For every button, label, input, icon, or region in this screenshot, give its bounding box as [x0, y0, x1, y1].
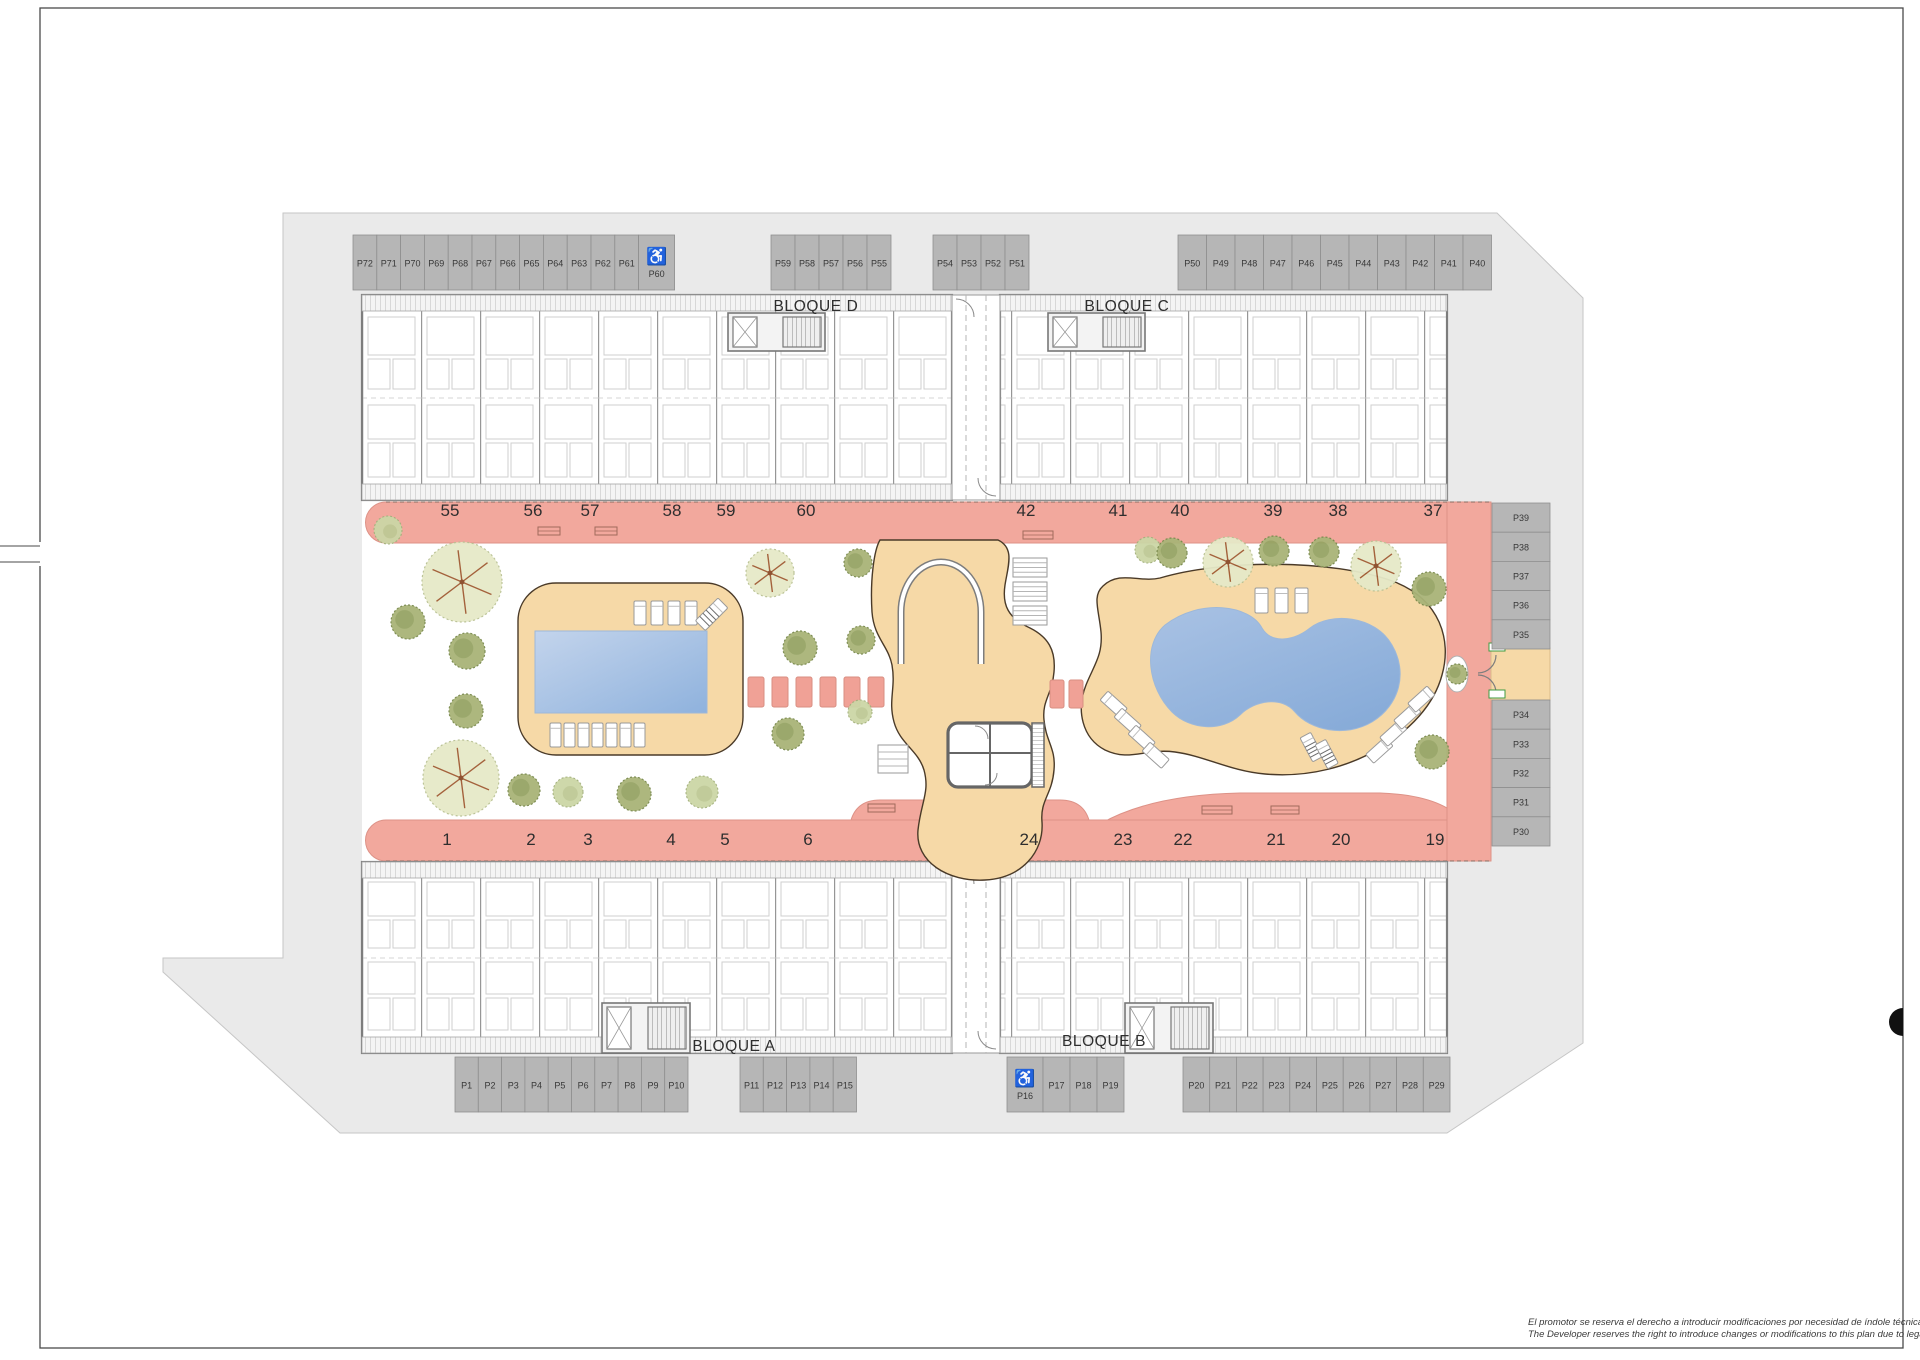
- balcony-strip: [1000, 862, 1447, 878]
- parking-stall: P21: [1210, 1057, 1237, 1112]
- sunbed: [1255, 588, 1268, 613]
- parking-stall-label: P6: [578, 1081, 589, 1091]
- parking-group-south-mid-east: ♿P16P17P18P19: [1007, 1057, 1124, 1112]
- parking-stall-label: P66: [500, 259, 516, 269]
- apartment-building: [1000, 862, 1447, 1053]
- unit-number-bottom: 19: [1426, 830, 1445, 849]
- sunbed: [606, 723, 617, 747]
- parking-group-east-upper: P39P38P37P36P35: [1492, 503, 1550, 649]
- unit-number-top: 37: [1424, 501, 1443, 520]
- parking-stall-label: P23: [1268, 1081, 1284, 1091]
- bench: [1013, 606, 1047, 625]
- stepping-stone: [1050, 680, 1064, 708]
- parking-stall: ♿P60: [639, 235, 675, 290]
- parking-group-south-west: P1P2P3P4P5P6P7P8P9P10: [455, 1057, 688, 1112]
- stepping-stone: [772, 677, 788, 707]
- parking-stall-label: P67: [476, 259, 492, 269]
- parking-stall-label: P11: [744, 1081, 759, 1091]
- sunbed: [1295, 588, 1308, 613]
- parking-stall: P43: [1378, 235, 1407, 290]
- parking-stall: P34: [1492, 700, 1550, 729]
- parking-stall-label: P8: [624, 1081, 635, 1091]
- parking-stall: P66: [496, 235, 520, 290]
- parking-stall: P71: [377, 235, 401, 290]
- block-label: BLOQUE B: [1062, 1033, 1146, 1050]
- gate-tag: [1489, 690, 1505, 698]
- parking-group-north-west: P72P71P70P69P68P67P66P65P64P63P62P61♿P60: [353, 235, 675, 290]
- parking-stall-label: P48: [1241, 259, 1257, 269]
- parking-stall-label: P44: [1355, 259, 1371, 269]
- tree: [1415, 735, 1449, 769]
- tree: [1157, 538, 1187, 568]
- unit-number-bottom: 22: [1174, 830, 1193, 849]
- bench: [1013, 558, 1047, 577]
- parking-stall: P32: [1492, 758, 1550, 787]
- parking-stall: P65: [520, 235, 544, 290]
- sunbed: [685, 601, 697, 625]
- parking-stall-label: P46: [1298, 259, 1314, 269]
- bench: [1013, 582, 1047, 601]
- unit-number-top: 39: [1264, 501, 1283, 520]
- parking-stall: P36: [1492, 591, 1550, 620]
- parking-group-north-east: P50P49P48P47P46P45P44P43P42P41P40: [1178, 235, 1492, 290]
- parking-stall-label: P62: [595, 259, 611, 269]
- unit-number-top: 57: [581, 501, 600, 520]
- parking-stall-label: P7: [601, 1081, 612, 1091]
- parking-group-east-lower: P34P33P32P31P30: [1492, 700, 1550, 846]
- tree: [686, 776, 718, 808]
- block-label: BLOQUE C: [1085, 298, 1170, 315]
- parking-stall: P28: [1397, 1057, 1424, 1112]
- parking-stall-label: P71: [381, 259, 397, 269]
- parking-stall: P70: [401, 235, 425, 290]
- parking-stall: P2: [478, 1057, 501, 1112]
- parking-stall: P52: [981, 235, 1005, 290]
- tree: [1447, 664, 1467, 684]
- disclaimer-line-en: The Developer reserves the right to intr…: [1528, 1329, 1920, 1340]
- parking-stall: P22: [1236, 1057, 1263, 1112]
- parking-stall: P72: [353, 235, 377, 290]
- parking-stall-label: P64: [547, 259, 563, 269]
- parking-stall: P8: [618, 1057, 641, 1112]
- stepping-stone: [868, 677, 884, 707]
- stair-core: [1048, 313, 1145, 351]
- tree: [1203, 537, 1253, 587]
- tree: [422, 542, 502, 622]
- balcony-strip: [362, 484, 952, 500]
- parking-stall: P23: [1263, 1057, 1290, 1112]
- parking-stall-label: P55: [871, 259, 887, 269]
- parking-stall-label: P61: [619, 259, 635, 269]
- parking-stall: P31: [1492, 788, 1550, 817]
- parking-stall-label: P43: [1384, 259, 1400, 269]
- sunbed: [651, 601, 663, 625]
- parking-stall: P41: [1435, 235, 1464, 290]
- wheelchair-icon: ♿: [1014, 1068, 1035, 1088]
- parking-group-south-mid-west: P11P12P13P14P15: [740, 1057, 857, 1112]
- parking-stall-label: P26: [1349, 1081, 1365, 1091]
- tree: [391, 605, 425, 639]
- unit-number-bottom: 2: [526, 830, 535, 849]
- parking-stall-label: P45: [1327, 259, 1343, 269]
- parking-stall: P13: [787, 1057, 810, 1112]
- parking-stall-label: P60: [649, 269, 665, 279]
- stair-core: [602, 1003, 690, 1053]
- sunbed: [1275, 588, 1288, 613]
- balcony-strip: [1000, 484, 1447, 500]
- parking-stall: P40: [1463, 235, 1492, 290]
- block-label: BLOQUE D: [774, 298, 859, 315]
- parking-stall: P19: [1097, 1057, 1124, 1112]
- tree: [1259, 536, 1289, 566]
- parking-stall: P58: [795, 235, 819, 290]
- parking-stall-label: P38: [1513, 542, 1529, 552]
- parking-stall: P51: [1005, 235, 1029, 290]
- parking-stall-label: P63: [571, 259, 587, 269]
- parking-stall: P24: [1290, 1057, 1317, 1112]
- unit-number-bottom: 3: [583, 830, 592, 849]
- parking-stall: P67: [472, 235, 496, 290]
- parking-stall-label: P10: [668, 1081, 684, 1091]
- parking-stall: P4: [525, 1057, 548, 1112]
- parking-stall-label: P17: [1048, 1081, 1064, 1091]
- parking-stall-label: P1: [461, 1081, 472, 1091]
- stepping-stone: [1069, 680, 1083, 708]
- unit-number-top: 41: [1109, 501, 1128, 520]
- unit-number-bottom: 6: [803, 830, 812, 849]
- parking-stall-label: P72: [357, 259, 373, 269]
- tree: [617, 777, 651, 811]
- parking-stall-label: P20: [1188, 1081, 1204, 1091]
- parking-stall: P45: [1321, 235, 1350, 290]
- parking-stall: P6: [572, 1057, 595, 1112]
- parking-stall-label: P52: [985, 259, 1001, 269]
- parking-stall-label: P42: [1412, 259, 1428, 269]
- building-passage: [952, 862, 1000, 1053]
- parking-stall-label: P13: [790, 1081, 806, 1091]
- parking-stall-label: P18: [1075, 1081, 1091, 1091]
- stepping-stone: [820, 677, 836, 707]
- tree: [1309, 537, 1339, 567]
- fold-mark: [1889, 1008, 1903, 1036]
- parking-stall: P64: [543, 235, 567, 290]
- tree: [1412, 572, 1446, 606]
- parking-stall: P9: [641, 1057, 664, 1112]
- parking-stall: P12: [763, 1057, 786, 1112]
- tree: [374, 516, 402, 544]
- parking-stall: P62: [591, 235, 615, 290]
- parking-stall-label: P41: [1441, 259, 1457, 269]
- parking-stall-label: P24: [1295, 1081, 1311, 1091]
- parking-stall-label: P69: [428, 259, 444, 269]
- parking-stall: ♿P16: [1007, 1057, 1043, 1112]
- unit-number-bottom: 4: [666, 830, 675, 849]
- parking-stall: P26: [1343, 1057, 1370, 1112]
- apartment-building: [362, 295, 952, 500]
- sunbed: [634, 601, 646, 625]
- tree: [508, 774, 540, 806]
- parking-stall: P44: [1349, 235, 1378, 290]
- parking-stall: P48: [1235, 235, 1264, 290]
- site-plan-page: P72P71P70P69P68P67P66P65P64P63P62P61♿P60…: [0, 0, 1920, 1360]
- parking-stall-label: P56: [847, 259, 863, 269]
- parking-stall-label: P36: [1513, 601, 1529, 611]
- parking-stall: P49: [1207, 235, 1236, 290]
- parking-stall: P63: [567, 235, 591, 290]
- parking-stall: P50: [1178, 235, 1207, 290]
- tree: [844, 549, 872, 577]
- parking-stall-label: P31: [1513, 798, 1529, 808]
- parking-stall: P47: [1264, 235, 1293, 290]
- stair-core: [728, 313, 825, 351]
- unit-number-top: 59: [717, 501, 736, 520]
- sunbed: [668, 601, 680, 625]
- parking-stall-label: P3: [508, 1081, 519, 1091]
- parking-stall-label: P12: [767, 1081, 783, 1091]
- parking-stall-label: P21: [1215, 1081, 1231, 1091]
- tree: [746, 549, 794, 597]
- stepping-stone: [748, 677, 764, 707]
- parking-stall: P55: [867, 235, 891, 290]
- parking-stall-label: P5: [554, 1081, 565, 1091]
- parking-stall-label: P40: [1469, 259, 1485, 269]
- block-label: BLOQUE A: [692, 1038, 775, 1055]
- sunbed: [620, 723, 631, 747]
- parking-stall: P54: [933, 235, 957, 290]
- unit-number-bottom: 5: [720, 830, 729, 849]
- parking-stall: P35: [1492, 620, 1550, 649]
- parking-stall: P1: [455, 1057, 478, 1112]
- tree: [848, 700, 872, 724]
- bench: [878, 745, 908, 773]
- parking-stall-label: P25: [1322, 1081, 1338, 1091]
- pool-house-stairs: [1032, 723, 1044, 787]
- parking-stall: P5: [548, 1057, 571, 1112]
- parking-stall: P59: [771, 235, 795, 290]
- parking-stall: P46: [1292, 235, 1321, 290]
- stepping-stone: [796, 677, 812, 707]
- tree: [553, 777, 583, 807]
- parking-stall-label: P2: [484, 1081, 495, 1091]
- parking-stall: P42: [1406, 235, 1435, 290]
- parking-stall: P10: [665, 1057, 688, 1112]
- parking-stall: P11: [740, 1057, 763, 1112]
- unit-number-bottom: 24: [1020, 830, 1039, 849]
- parking-stall: P20: [1183, 1057, 1210, 1112]
- unit-number-bottom: 21: [1267, 830, 1286, 849]
- sunbed: [550, 723, 561, 747]
- unit-number-top: 60: [797, 501, 816, 520]
- sunbed: [634, 723, 645, 747]
- parking-stall: P33: [1492, 729, 1550, 758]
- parking-stall: P69: [424, 235, 448, 290]
- parking-stall: P25: [1317, 1057, 1344, 1112]
- parking-stall-label: P32: [1513, 769, 1529, 779]
- parking-group-north-mid-west: P59P58P57P56P55: [771, 235, 891, 290]
- parking-stall-label: P9: [648, 1081, 659, 1091]
- tree: [423, 740, 499, 816]
- parking-stall-label: P39: [1513, 513, 1529, 523]
- west-pool-water: [535, 631, 707, 713]
- parking-stall-label: P49: [1213, 259, 1229, 269]
- sunbed: [564, 723, 575, 747]
- parking-stall: P29: [1423, 1057, 1450, 1112]
- parking-stall-label: P70: [404, 259, 420, 269]
- tree: [449, 694, 483, 728]
- parking-stall-label: P59: [775, 259, 791, 269]
- tree: [449, 633, 485, 669]
- parking-stall: P18: [1070, 1057, 1097, 1112]
- parking-stall: P3: [502, 1057, 525, 1112]
- parking-stall: P61: [615, 235, 639, 290]
- balcony-strip: [362, 862, 952, 878]
- parking-stall-label: P65: [523, 259, 539, 269]
- parking-stall-label: P34: [1513, 710, 1529, 720]
- unit-number-top: 42: [1017, 501, 1036, 520]
- sunbed: [578, 723, 589, 747]
- parking-stall: P15: [833, 1057, 856, 1112]
- parking-stall-label: P27: [1375, 1081, 1391, 1091]
- parking-stall-label: P58: [799, 259, 815, 269]
- unit-number-bottom: 20: [1332, 830, 1351, 849]
- parking-stall: P14: [810, 1057, 833, 1112]
- terrace-strip: [362, 295, 952, 311]
- parking-stall-label: P57: [823, 259, 839, 269]
- parking-stall: P17: [1043, 1057, 1070, 1112]
- parking-stall-label: P22: [1242, 1081, 1258, 1091]
- parking-stall-label: P30: [1513, 827, 1529, 837]
- building-passage: [952, 295, 1000, 500]
- parking-stall-label: P19: [1102, 1081, 1118, 1091]
- parking-stall-label: P68: [452, 259, 468, 269]
- unit-number-bottom: 1: [442, 830, 451, 849]
- parking-stall-label: P51: [1009, 259, 1025, 269]
- unit-number-top: 56: [524, 501, 543, 520]
- tree: [783, 631, 817, 665]
- parking-stall: P39: [1492, 503, 1550, 532]
- tree: [1351, 541, 1401, 591]
- parking-stall: P68: [448, 235, 472, 290]
- parking-stall-label: P14: [814, 1081, 830, 1091]
- parking-stall-label: P37: [1513, 572, 1529, 582]
- parking-stall-label: P28: [1402, 1081, 1418, 1091]
- parking-stall: P7: [595, 1057, 618, 1112]
- parking-group-south-east: P20P21P22P23P24P25P26P27P28P29: [1183, 1057, 1450, 1112]
- pool-house: [948, 723, 1044, 787]
- unit-number-bottom: 23: [1114, 830, 1133, 849]
- parking-stall: P38: [1492, 532, 1550, 561]
- parking-stall-label: P47: [1270, 259, 1286, 269]
- terrace-strip: [1000, 295, 1447, 311]
- parking-stall-label: P53: [961, 259, 977, 269]
- sunbed: [592, 723, 603, 747]
- site-plan-drawing: P72P71P70P69P68P67P66P65P64P63P62P61♿P60…: [0, 0, 1920, 1360]
- parking-stall-label: P15: [837, 1081, 853, 1091]
- parking-stall-label: P35: [1513, 630, 1529, 640]
- parking-stall: P57: [819, 235, 843, 290]
- unit-number-top: 40: [1171, 501, 1190, 520]
- tree: [847, 626, 875, 654]
- parking-stall-label: P54: [937, 259, 953, 269]
- parking-stall-label: P50: [1184, 259, 1200, 269]
- unit-number-top: 58: [663, 501, 682, 520]
- parking-group-north-mid-east: P54P53P52P51: [933, 235, 1029, 290]
- disclaimer-line-es: El promotor se reserva el derecho a intr…: [1528, 1317, 1920, 1328]
- parking-stall: P53: [957, 235, 981, 290]
- unit-number-top: 55: [441, 501, 460, 520]
- wheelchair-icon: ♿: [646, 246, 667, 266]
- tree: [772, 718, 804, 750]
- parking-stall-label: P4: [531, 1081, 542, 1091]
- disclaimer: El promotor se reserva el derecho a intr…: [1528, 1317, 1920, 1340]
- unit-number-top: 38: [1329, 501, 1348, 520]
- parking-stall-label: P16: [1017, 1091, 1033, 1101]
- parking-stall: P30: [1492, 817, 1550, 846]
- parking-stall: P56: [843, 235, 867, 290]
- parking-stall: P37: [1492, 561, 1550, 590]
- parking-stall-label: P33: [1513, 739, 1529, 749]
- parking-stall-label: P29: [1429, 1081, 1445, 1091]
- parking-stall: P27: [1370, 1057, 1397, 1112]
